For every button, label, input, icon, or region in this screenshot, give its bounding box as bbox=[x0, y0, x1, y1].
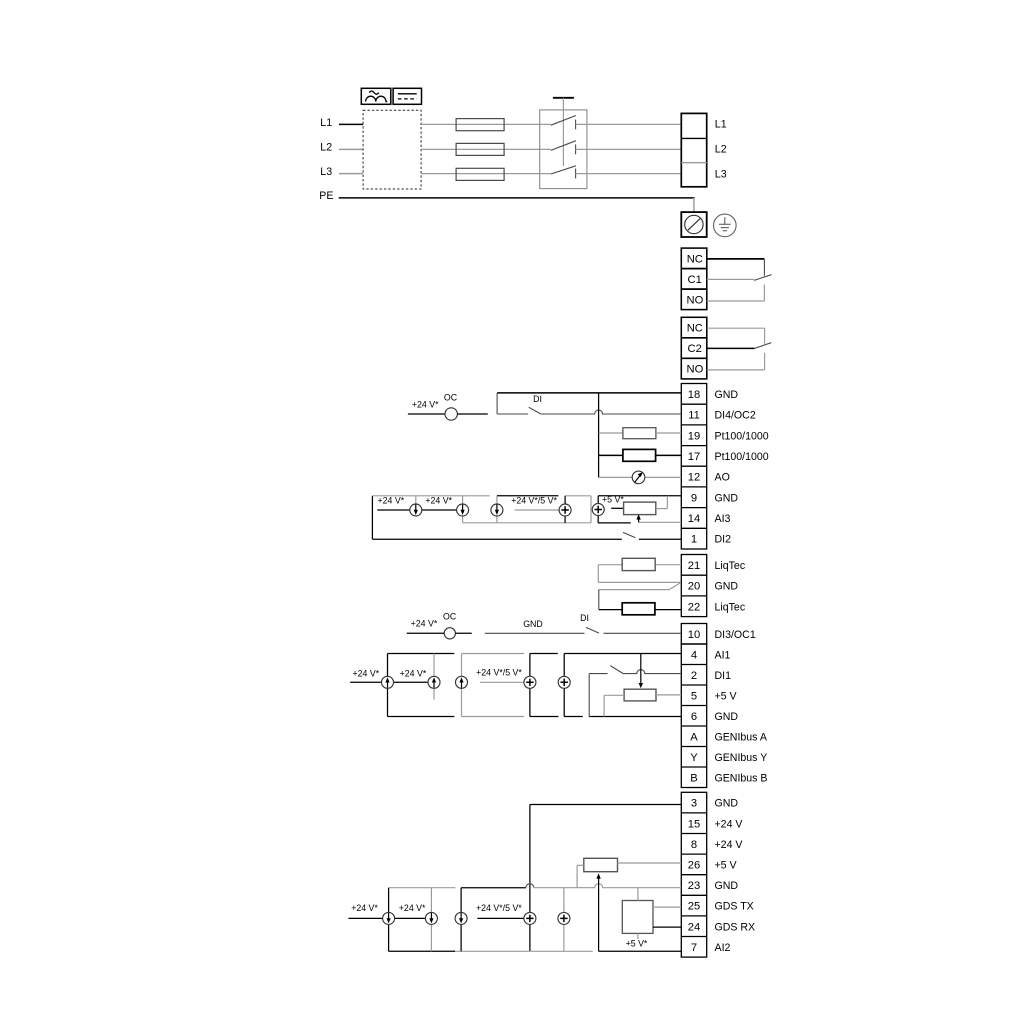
svg-text:B: B bbox=[690, 773, 697, 785]
svg-text:DI1: DI1 bbox=[715, 670, 732, 682]
svg-text:AI3: AI3 bbox=[715, 513, 731, 525]
svg-text:PE: PE bbox=[319, 190, 333, 202]
svg-text:NO: NO bbox=[687, 364, 704, 376]
svg-text:Pt100/1000: Pt100/1000 bbox=[715, 430, 769, 442]
svg-text:11: 11 bbox=[688, 410, 700, 422]
svg-text:22: 22 bbox=[688, 601, 700, 613]
svg-text:GENIbus Y: GENIbus Y bbox=[715, 752, 768, 764]
svg-text:GND: GND bbox=[523, 619, 543, 629]
svg-text:L3: L3 bbox=[715, 168, 727, 180]
svg-text:26: 26 bbox=[688, 860, 700, 872]
svg-text:3: 3 bbox=[691, 798, 697, 810]
svg-text:GDS TX: GDS TX bbox=[715, 901, 754, 913]
svg-text:+24 V*: +24 V* bbox=[378, 496, 405, 506]
svg-text:15: 15 bbox=[688, 818, 700, 830]
svg-text:1: 1 bbox=[691, 534, 697, 546]
svg-text:NC: NC bbox=[687, 253, 703, 265]
svg-text:A: A bbox=[690, 732, 698, 744]
svg-text:GND: GND bbox=[715, 492, 739, 504]
svg-text:+24 V*: +24 V* bbox=[351, 903, 378, 913]
svg-text:+24 V*: +24 V* bbox=[400, 668, 427, 678]
svg-text:19: 19 bbox=[688, 430, 700, 442]
svg-text:+24 V*/5 V*: +24 V*/5 V* bbox=[476, 668, 522, 678]
svg-text:GND: GND bbox=[715, 880, 739, 892]
svg-text:+24 V*: +24 V* bbox=[399, 903, 426, 913]
svg-text:+24 V*/5 V*: +24 V*/5 V* bbox=[511, 496, 557, 506]
svg-text:23: 23 bbox=[688, 880, 700, 892]
svg-text:GND: GND bbox=[715, 711, 739, 723]
svg-text:+24 V*: +24 V* bbox=[411, 618, 438, 628]
svg-text:8: 8 bbox=[691, 839, 697, 851]
svg-text:Pt100/1000: Pt100/1000 bbox=[715, 451, 769, 463]
svg-text:L1: L1 bbox=[320, 117, 332, 129]
svg-text:DI: DI bbox=[580, 613, 589, 623]
svg-text:L3: L3 bbox=[320, 166, 332, 178]
svg-text:2: 2 bbox=[691, 670, 697, 682]
svg-text:5: 5 bbox=[691, 691, 697, 703]
svg-text:20: 20 bbox=[688, 581, 700, 593]
svg-text:AI2: AI2 bbox=[715, 942, 731, 954]
svg-text:GND: GND bbox=[715, 798, 739, 810]
svg-text:DI: DI bbox=[533, 394, 542, 404]
svg-text:+24 V*/5 V*: +24 V*/5 V* bbox=[476, 903, 522, 913]
svg-text:+24 V: +24 V bbox=[715, 839, 744, 851]
svg-text:17: 17 bbox=[688, 451, 700, 463]
svg-text:9: 9 bbox=[691, 492, 697, 504]
svg-text:+5 V: +5 V bbox=[715, 691, 738, 703]
svg-text:+24 V*: +24 V* bbox=[425, 496, 452, 506]
svg-text:L1: L1 bbox=[715, 119, 727, 131]
svg-text:LiqTec: LiqTec bbox=[715, 601, 746, 613]
svg-text:Y: Y bbox=[690, 752, 698, 764]
svg-text:25: 25 bbox=[688, 901, 700, 913]
svg-text:GND: GND bbox=[715, 389, 739, 401]
svg-text:DI3/OC1: DI3/OC1 bbox=[715, 629, 756, 641]
svg-text:+24 V*: +24 V* bbox=[353, 668, 380, 678]
svg-text:+5 V*: +5 V* bbox=[626, 938, 648, 948]
svg-text:L2: L2 bbox=[715, 144, 727, 156]
svg-text:12: 12 bbox=[688, 472, 700, 484]
svg-text:4: 4 bbox=[691, 650, 697, 662]
svg-text:LiqTec: LiqTec bbox=[715, 560, 746, 572]
svg-text:L2: L2 bbox=[320, 142, 332, 154]
svg-text:GENIbus A: GENIbus A bbox=[715, 732, 768, 744]
svg-text:GDS RX: GDS RX bbox=[715, 921, 756, 933]
svg-text:C2: C2 bbox=[688, 343, 702, 355]
svg-text:C1: C1 bbox=[688, 274, 702, 286]
svg-text:GENIbus B: GENIbus B bbox=[715, 773, 768, 785]
svg-text:AO: AO bbox=[715, 472, 730, 484]
svg-text:7: 7 bbox=[691, 942, 697, 954]
svg-text:14: 14 bbox=[688, 513, 700, 525]
svg-text:18: 18 bbox=[688, 389, 700, 401]
svg-text:NO: NO bbox=[687, 294, 704, 306]
svg-text:GND: GND bbox=[715, 581, 739, 593]
svg-text:+24 V*: +24 V* bbox=[412, 399, 439, 409]
svg-text:6: 6 bbox=[691, 711, 697, 723]
svg-text:OC: OC bbox=[443, 611, 457, 621]
svg-text:DI4/OC2: DI4/OC2 bbox=[715, 410, 756, 422]
svg-text:AI1: AI1 bbox=[715, 650, 731, 662]
svg-text:DI2: DI2 bbox=[715, 534, 732, 546]
svg-text:10: 10 bbox=[688, 629, 700, 641]
svg-text:21: 21 bbox=[688, 560, 700, 572]
svg-text:OC: OC bbox=[444, 392, 458, 402]
svg-text:24: 24 bbox=[688, 921, 700, 933]
svg-text:+24 V: +24 V bbox=[715, 818, 744, 830]
svg-text:+5 V*: +5 V* bbox=[602, 494, 624, 504]
svg-text:+5 V: +5 V bbox=[715, 860, 738, 872]
svg-text:NC: NC bbox=[687, 323, 703, 335]
